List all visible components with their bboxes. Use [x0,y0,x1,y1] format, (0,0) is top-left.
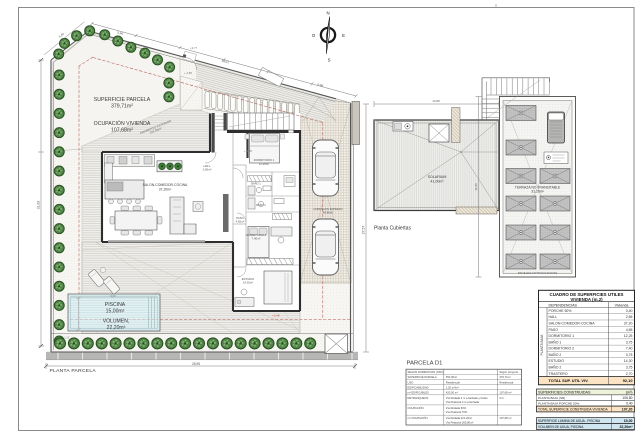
svg-text:7,40m²: 7,40m² [252,237,261,241]
svg-text:420,00 m²: 420,00 m² [446,391,458,395]
svg-text:0,40: 0,40 [626,402,633,406]
svg-text:PLANTA PARCELA: PLANTA PARCELA [50,368,97,374]
svg-text:37,20m²: 37,20m² [159,188,172,192]
svg-text:SEGUN NORMATIVAS (SSO): SEGUN NORMATIVAS (SSO) [408,370,444,374]
svg-text:Vía Peatonal 265,80m²: Vía Peatonal 265,80m² [446,421,474,425]
svg-text:N: N [326,11,329,16]
svg-text:PLANTA BAJA (SR): PLANTA BAJA (SR) [538,396,565,400]
svg-text:2,70: 2,70 [626,372,633,376]
svg-text:14,30m²: 14,30m² [243,281,253,285]
svg-text:m² EDIFICABLES: m² EDIFICABLES [408,391,430,395]
svg-text:SUPERFICIE LAMINA DE AGUA - PI: SUPERFICIE LAMINA DE AGUA - PISCINA [538,419,601,423]
svg-text:379,71m²: 379,71m² [499,375,510,379]
svg-text:1,20 m²/m²: 1,20 m²/m² [446,385,459,389]
svg-text:PANELES FOTOVOLTAICOS: PANELES FOTOVOLTAICOS [518,271,557,275]
svg-text:PARCELA D1: PARCELA D1 [407,361,443,367]
svg-text:3,75: 3,75 [626,366,633,370]
svg-text:E: E [342,33,345,38]
svg-text:4,65m²: 4,65m² [236,220,245,224]
svg-text:14,30: 14,30 [624,359,633,363]
svg-text:SALON-COMEDOR-COCINA: SALON-COMEDOR-COCINA [549,321,596,325]
svg-text:BAÑO 2: BAÑO 2 [549,352,562,357]
svg-text:PLANTA BAJA PORCHE 50%: PLANTA BAJA PORCHE 50% [538,402,579,406]
svg-text:4,65: 4,65 [626,328,633,332]
svg-text:BAÑO 2: BAÑO 2 [549,365,562,370]
svg-text:DORMITORIO 1: DORMITORIO 1 [549,334,575,338]
svg-text:9,06: 9,06 [110,294,116,298]
svg-text:SOLARIUM: SOLARIUM [428,175,447,179]
svg-text:379,71m²: 379,71m² [111,104,133,110]
svg-text:PORCHE 50%: PORCHE 50% [549,309,572,313]
svg-text:TOTAL SUPERFICIE CONSTRUIDA VI: TOTAL SUPERFICIE CONSTRUIDA VIVIENDA [538,407,609,411]
svg-text:106,80: 106,80 [622,396,632,400]
svg-text:VOLUMEN,: VOLUMEN, [103,319,130,325]
svg-text:SUPERFICIES CONSTRUIDAS: SUPERFICIES CONSTRUIDAS [538,390,591,394]
svg-text:SUPERFICIE PARCELA: SUPERFICIE PARCELA [94,97,151,103]
svg-text:49,88m²: 49,88m² [323,211,333,215]
svg-text:PASO: PASO [549,328,559,332]
svg-text:+2,98: +2,98 [272,314,280,318]
svg-text:TOTAL SUP. UTIL VIV.: TOTAL SUP. UTIL VIV. [549,378,589,383]
svg-text:RETRANQUEOS: RETRANQUEOS [408,396,429,400]
svg-text:(m²): (m²) [626,390,633,394]
svg-text:27,57: 27,57 [362,226,366,235]
svg-text:2,65m²: 2,65m² [203,168,212,172]
svg-text:S: S [328,58,331,63]
svg-text:0,40: 0,40 [626,309,633,313]
svg-text:Planta Cubiertas: Planta Cubiertas [374,226,411,232]
svg-text:11,00: 11,00 [474,183,478,191]
svg-text:12,25m²: 12,25m² [259,162,269,166]
svg-text:107,68 m²: 107,68 m² [499,416,511,420]
svg-text:DORMITORIO 2: DORMITORIO 2 [549,347,575,351]
svg-text:22,20m³: 22,20m³ [619,425,633,429]
svg-text:Residencial: Residencial [446,380,460,384]
svg-text:DEPENDENCIAS: DEPENDENCIAS [549,303,578,307]
svg-text:Vía Rodada 60%: Vía Rodada 60% [446,406,467,410]
svg-text:350,00m²: 350,00m² [446,375,457,379]
svg-text:+ 4,58: + 4,58 [244,149,252,153]
svg-text:31,63: 31,63 [37,201,41,210]
svg-text:Vía Peatonal 3 m a fachada: Vía Peatonal 3 m a fachada [446,400,480,404]
svg-text:31,26m²: 31,26m² [531,190,544,194]
svg-text:3,75: 3,75 [626,353,633,357]
svg-text:+ 4,58: + 4,58 [184,71,192,75]
svg-text:OCUPACIÓN VIVIENDA: OCUPACIÓN VIVIENDA [94,120,151,127]
svg-text:USO: USO [408,380,414,384]
svg-text:Vía Peatonal 70%: Vía Peatonal 70% [446,410,468,414]
svg-text:107,20: 107,20 [622,407,633,411]
svg-text:15,00m²: 15,00m² [106,309,125,315]
svg-text:VOLUMEN DE AGUA, PISCINA: VOLUMEN DE AGUA, PISCINA [538,425,584,429]
svg-text:PLANTA BAJA: PLANTA BAJA [540,334,544,356]
svg-text:Residencial: Residencial [499,380,513,384]
svg-text:15,00: 15,00 [624,419,633,423]
svg-text:Vía Rodada 3 m a fachada: Vía Rodada 3 m a fachada y lindes [446,396,488,400]
svg-text:92,10: 92,10 [623,378,633,383]
svg-text:PISCINA: PISCINA [105,302,126,308]
svg-text:ESTUDIO: ESTUDIO [549,359,565,363]
svg-text:41,00m²: 41,00m² [430,180,444,184]
svg-text:22,20m³: 22,20m³ [107,325,126,331]
svg-text:28,98: 28,98 [192,362,200,366]
svg-text:37,20: 37,20 [624,321,633,325]
svg-text:VIVIENDA (m.2): VIVIENDA (m.2) [570,297,603,302]
svg-text:EDIFICABILIDAD: EDIFICABILIDAD [408,385,429,389]
svg-text:13,95: 13,95 [432,99,440,103]
svg-text:Según proyecto: Según proyecto [499,370,518,374]
svg-text:HALL: HALL [549,315,558,319]
svg-text:Vivienda: Vivienda [615,303,629,307]
svg-text:107,68 m²: 107,68 m² [499,391,511,395]
svg-text:Vía Rodada 221,26m²: Vía Rodada 221,26m² [446,416,472,420]
svg-text:2,65: 2,65 [626,315,633,319]
svg-text:3 m: 3 m [499,396,504,400]
svg-text:7,40: 7,40 [626,347,633,351]
svg-text:12,25: 12,25 [624,334,633,338]
svg-text:3,75: 3,75 [626,340,633,344]
svg-text:107,68m²: 107,68m² [111,128,133,134]
svg-text:SUPERFICIE PARCELA: SUPERFICIE PARCELA [408,375,437,379]
svg-text:+3,77: +3,77 [190,46,198,50]
svg-text:BAÑO 1: BAÑO 1 [549,339,562,344]
svg-text:TRASTERO: TRASTERO [549,372,568,376]
svg-text:SALON-COMEDOR-COCINA: SALON-COMEDOR-COCINA [143,183,188,187]
